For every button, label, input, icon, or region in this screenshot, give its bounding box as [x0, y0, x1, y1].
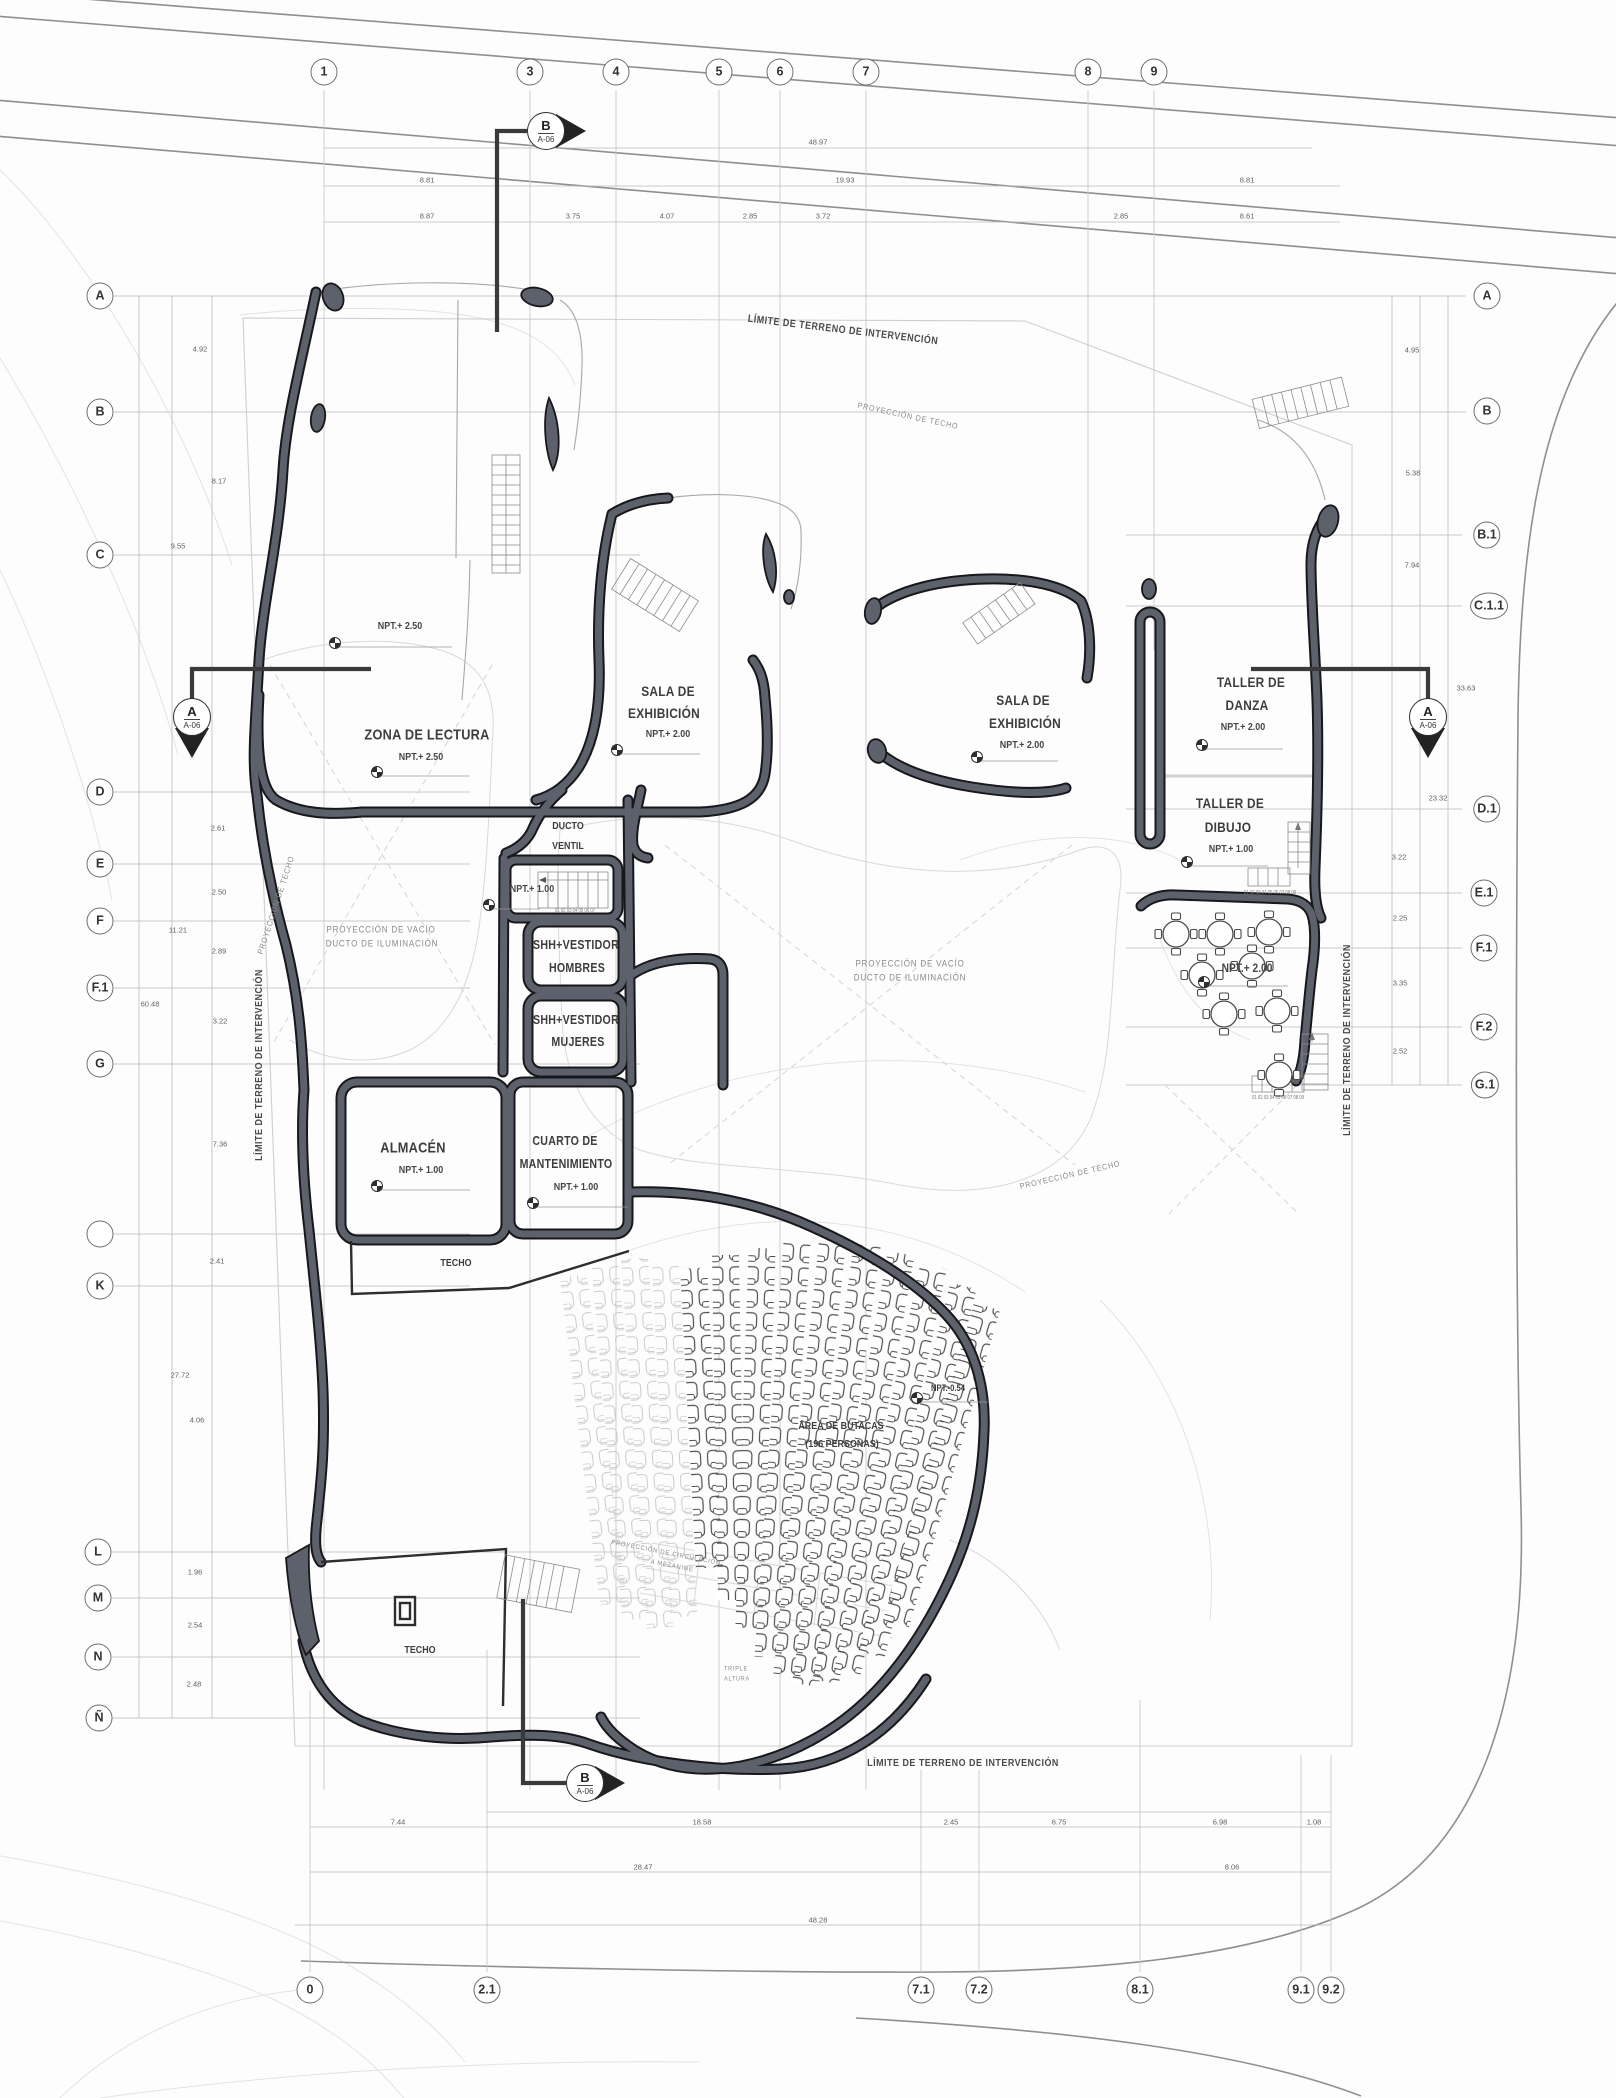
grid-bubble-right-c11: C.1.1: [1470, 593, 1508, 620]
grid-bubble-bottom-71: 7.1: [908, 1977, 935, 2004]
room-sala-exhibicion-2b: EXHIBICIÓN: [989, 715, 1061, 731]
stair-steps-dibujo: 01 02 03 04 05 06 07 08 09: [1244, 890, 1296, 896]
dim-left: 2.50: [212, 888, 227, 897]
dim-left: 4.06: [190, 1416, 205, 1425]
triple-altura-2: ALTURA: [724, 1676, 750, 1683]
level-taller-danza: NPT.+ 2.00: [1221, 721, 1265, 733]
audience-seats: [680, 1240, 1000, 1687]
dim-bottom: 28.47: [634, 1863, 653, 1872]
room-butacas-a: ÁREA DE BUTACAS: [798, 1420, 883, 1432]
section-marker-top: B A-06: [527, 112, 565, 150]
grid-bubble-left-e: E: [87, 851, 114, 878]
section-letter: A: [1423, 705, 1432, 718]
dim-top: 8.87: [420, 212, 435, 221]
dim-top: 19.93: [836, 176, 855, 185]
dim-left: 2.48: [187, 1680, 202, 1689]
dim-left: 2.41: [210, 1257, 225, 1266]
level-butacas: NPT.-0.54: [931, 1383, 965, 1393]
dim-right: 7.94: [1405, 561, 1420, 570]
proyeccion-vacio-1b: DUCTO DE ILUMINACIÓN: [326, 939, 439, 950]
level-almacen: NPT.+ 1.00: [399, 1164, 443, 1176]
site-limit-right: LÍMITE DE TERRENO DE INTERVENCIÓN: [1341, 944, 1353, 1136]
grid-bubble-top-6: 6: [767, 59, 794, 86]
dim-bottom: 2.45: [944, 1818, 959, 1827]
grid-bubble-left-f1: F.1: [87, 975, 114, 1002]
grid-bubble-top-7: 7: [853, 59, 880, 86]
section-marker-bottom: B A-06: [566, 1764, 604, 1802]
grid-bubble-right-b: B: [1474, 398, 1501, 425]
proyeccion-vacio-2b: DUCTO DE ILUMINACIÓN: [854, 973, 967, 984]
room-zona-lectura: ZONA DE LECTURA: [364, 727, 489, 744]
grid-bubble-left-b: B: [87, 399, 114, 426]
room-taller-dibujo-b: DIBUJO: [1205, 819, 1251, 835]
grid-bubble-left-l: L: [85, 1539, 112, 1566]
patio-tables: [1155, 911, 1300, 1096]
section-letter: B: [580, 1771, 589, 1784]
level-mantenimiento: NPT.+ 1.00: [554, 1181, 598, 1193]
grid-bubble-right-f2: F.2: [1471, 1014, 1498, 1041]
level-sala-exhibicion-2: NPT.+ 2.00: [1000, 739, 1044, 751]
grid-bubble-left-f: F: [87, 908, 114, 935]
dim-right: 3.22: [1392, 853, 1407, 862]
site-limit-left: LÍMITE DE TERRENO DE INTERVENCIÓN: [253, 969, 265, 1161]
dim-top: 2.85: [1114, 212, 1129, 221]
grid-bubble-top-4: 4: [603, 59, 630, 86]
dim-left: 7.36: [213, 1140, 228, 1149]
dim-bottom: 7.44: [391, 1818, 406, 1827]
grid-bubble-right-a: A: [1474, 283, 1501, 310]
dim-right: 4.95: [1405, 346, 1420, 355]
dim-top: 2.85: [743, 212, 758, 221]
grid-bubble-right-e1: E.1: [1471, 880, 1498, 907]
section-letter: A: [187, 705, 196, 718]
grid-bubble-left-nn: Ñ: [86, 1705, 113, 1732]
grid-bubble-left-n: N: [85, 1644, 112, 1671]
section-sheet: A-06: [184, 719, 201, 730]
dim-left: 60.48: [141, 1000, 160, 1009]
dim-left: 9.55: [171, 542, 186, 551]
room-shh-hombres-b: HOMBRES: [549, 961, 605, 975]
dim-bottom: 8.06: [1225, 1863, 1240, 1872]
grid-bubble-bottom-72: 7.2: [966, 1977, 993, 2004]
grid-bubble-top-5: 5: [706, 59, 733, 86]
grid-bubble-left-g: G: [87, 1051, 114, 1078]
grid-bubble-left-a: A: [87, 283, 114, 310]
section-sheet: A-06: [1420, 719, 1437, 730]
dim-bottom: 6.75: [1052, 1818, 1067, 1827]
section-marker-right: A A-06: [1409, 698, 1447, 736]
dim-top: 48.97: [809, 138, 828, 147]
plan-drawing: [0, 0, 1616, 2098]
proyeccion-vacio-2a: PROYECCIÓN DE VACÍO: [855, 959, 964, 970]
room-shh-mujeres-a: SHH+VESTIDOR: [533, 1013, 619, 1027]
dim-bottom: 6.98: [1213, 1818, 1228, 1827]
grid-bubble-right-f1: F.1: [1471, 935, 1498, 962]
dim-left: 1.96: [188, 1568, 203, 1577]
room-ducto-b: VENTIL: [552, 840, 584, 852]
triple-altura-1: TRIPLE: [724, 1666, 748, 1673]
grid-bubble-left-d: D: [87, 779, 114, 806]
room-taller-danza-b: DANZA: [1226, 697, 1269, 713]
section-sheet: A-06: [577, 1785, 594, 1796]
dim-left: 8.17: [212, 477, 227, 486]
dim-left: 3.22: [213, 1017, 228, 1026]
room-techo-1: TECHO: [440, 1257, 471, 1269]
dim-top: 4.07: [660, 212, 675, 221]
grid-bubble-left-blank: [87, 1221, 114, 1248]
dim-right: 2.25: [1393, 914, 1408, 923]
level-terraza: NPT.+ 2.00: [1222, 961, 1273, 975]
room-mantenimiento-b: MANTENIMIENTO: [520, 1157, 613, 1171]
dim-bottom: 1.08: [1307, 1818, 1322, 1827]
grid-bubble-bottom-92: 9.2: [1318, 1977, 1345, 2004]
grid-bubble-bottom-21: 2.1: [474, 1977, 501, 2004]
level-taller-dibujo: NPT.+ 1.00: [1209, 843, 1253, 855]
level-zona-lectura: NPT.+ 2.50: [399, 751, 443, 763]
grid-bubble-top-8: 8: [1075, 59, 1102, 86]
grid-bubble-right-g1: G.1: [1471, 1072, 1499, 1099]
stair-steps-terraza: 01 02 03 04 05 06 07 08 09: [1252, 1095, 1304, 1101]
dim-top: 8.61: [1240, 212, 1255, 221]
room-sala-exhibicion-1a: SALA DE: [641, 683, 695, 699]
dim-right: 5.38: [1406, 469, 1421, 478]
room-techo-2: TECHO: [404, 1644, 435, 1656]
level-vestibulo: NPT.+ 1.00: [510, 883, 554, 895]
grid-bubble-bottom-91: 9.1: [1288, 1977, 1315, 2004]
grid-bubble-left-c: C: [87, 542, 114, 569]
dim-left: 27.72: [171, 1371, 190, 1380]
grid-lines: [112, 90, 1466, 1972]
dim-top: 3.75: [566, 212, 581, 221]
grid-bubble-left-k: K: [87, 1273, 114, 1300]
dim-right: 23.32: [1429, 794, 1448, 803]
room-taller-dibujo-a: TALLER DE: [1196, 795, 1264, 811]
room-shh-hombres-a: SHH+VESTIDOR: [533, 938, 619, 952]
dim-left: 2.61: [211, 824, 226, 833]
site-limit-bottom: LÍMITE DE TERRENO DE INTERVENCIÓN: [867, 1757, 1059, 1769]
section-letter: B: [541, 119, 550, 132]
level-sala-exhibicion-1: NPT.+ 2.00: [646, 728, 690, 740]
room-butacas-b: (196 PERSONAS): [805, 1438, 878, 1450]
room-almacen: ALMACÉN: [380, 1140, 446, 1157]
dim-right: 3.35: [1393, 979, 1408, 988]
dim-bottom: 48.28: [809, 1916, 828, 1925]
floor-plan: 1 3 4 5 6 7 8 9 A B C D E F F.1 G K L M …: [0, 0, 1616, 2098]
section-marker-left: A A-06: [173, 698, 211, 736]
audience-seats-ghost: [560, 1257, 697, 1628]
dim-left: 4.92: [193, 345, 208, 354]
grid-bubble-bottom-0: 0: [297, 1977, 324, 2004]
dim-top: 8.81: [420, 176, 435, 185]
room-ducto-a: DUCTO: [552, 820, 584, 832]
level-upper: NPT.+ 2.50: [378, 620, 422, 632]
dim-right: 2.52: [1393, 1047, 1408, 1056]
room-sala-exhibicion-2a: SALA DE: [996, 692, 1050, 708]
dim-left: 2.54: [188, 1621, 203, 1630]
dim-left: 11.21: [169, 926, 187, 935]
grid-bubble-bottom-81: 8.1: [1127, 1977, 1154, 2004]
dim-bottom: 18.58: [693, 1818, 712, 1827]
room-taller-danza-a: TALLER DE: [1217, 674, 1285, 690]
dim-right: 33.63: [1457, 684, 1476, 693]
grid-bubble-top-9: 9: [1141, 59, 1168, 86]
grid-bubble-top-1: 1: [311, 59, 338, 86]
dim-top: 3.72: [816, 212, 831, 221]
grid-bubble-top-3: 3: [517, 59, 544, 86]
dim-left: 2.89: [212, 947, 227, 956]
room-shh-mujeres-b: MUJERES: [551, 1035, 604, 1049]
proyeccion-vacio-1a: PROYECCIÓN DE VACÍO: [326, 925, 435, 936]
grid-bubble-left-m: M: [85, 1585, 112, 1612]
stair-steps-vestibulo: 01 02 03 04 05 06 07: [555, 908, 595, 914]
room-mantenimiento-a: CUARTO DE: [532, 1134, 597, 1148]
section-sheet: A-06: [538, 133, 555, 144]
room-sala-exhibicion-1b: EXHIBICIÓN: [628, 705, 700, 721]
dim-top: 8.81: [1240, 176, 1255, 185]
